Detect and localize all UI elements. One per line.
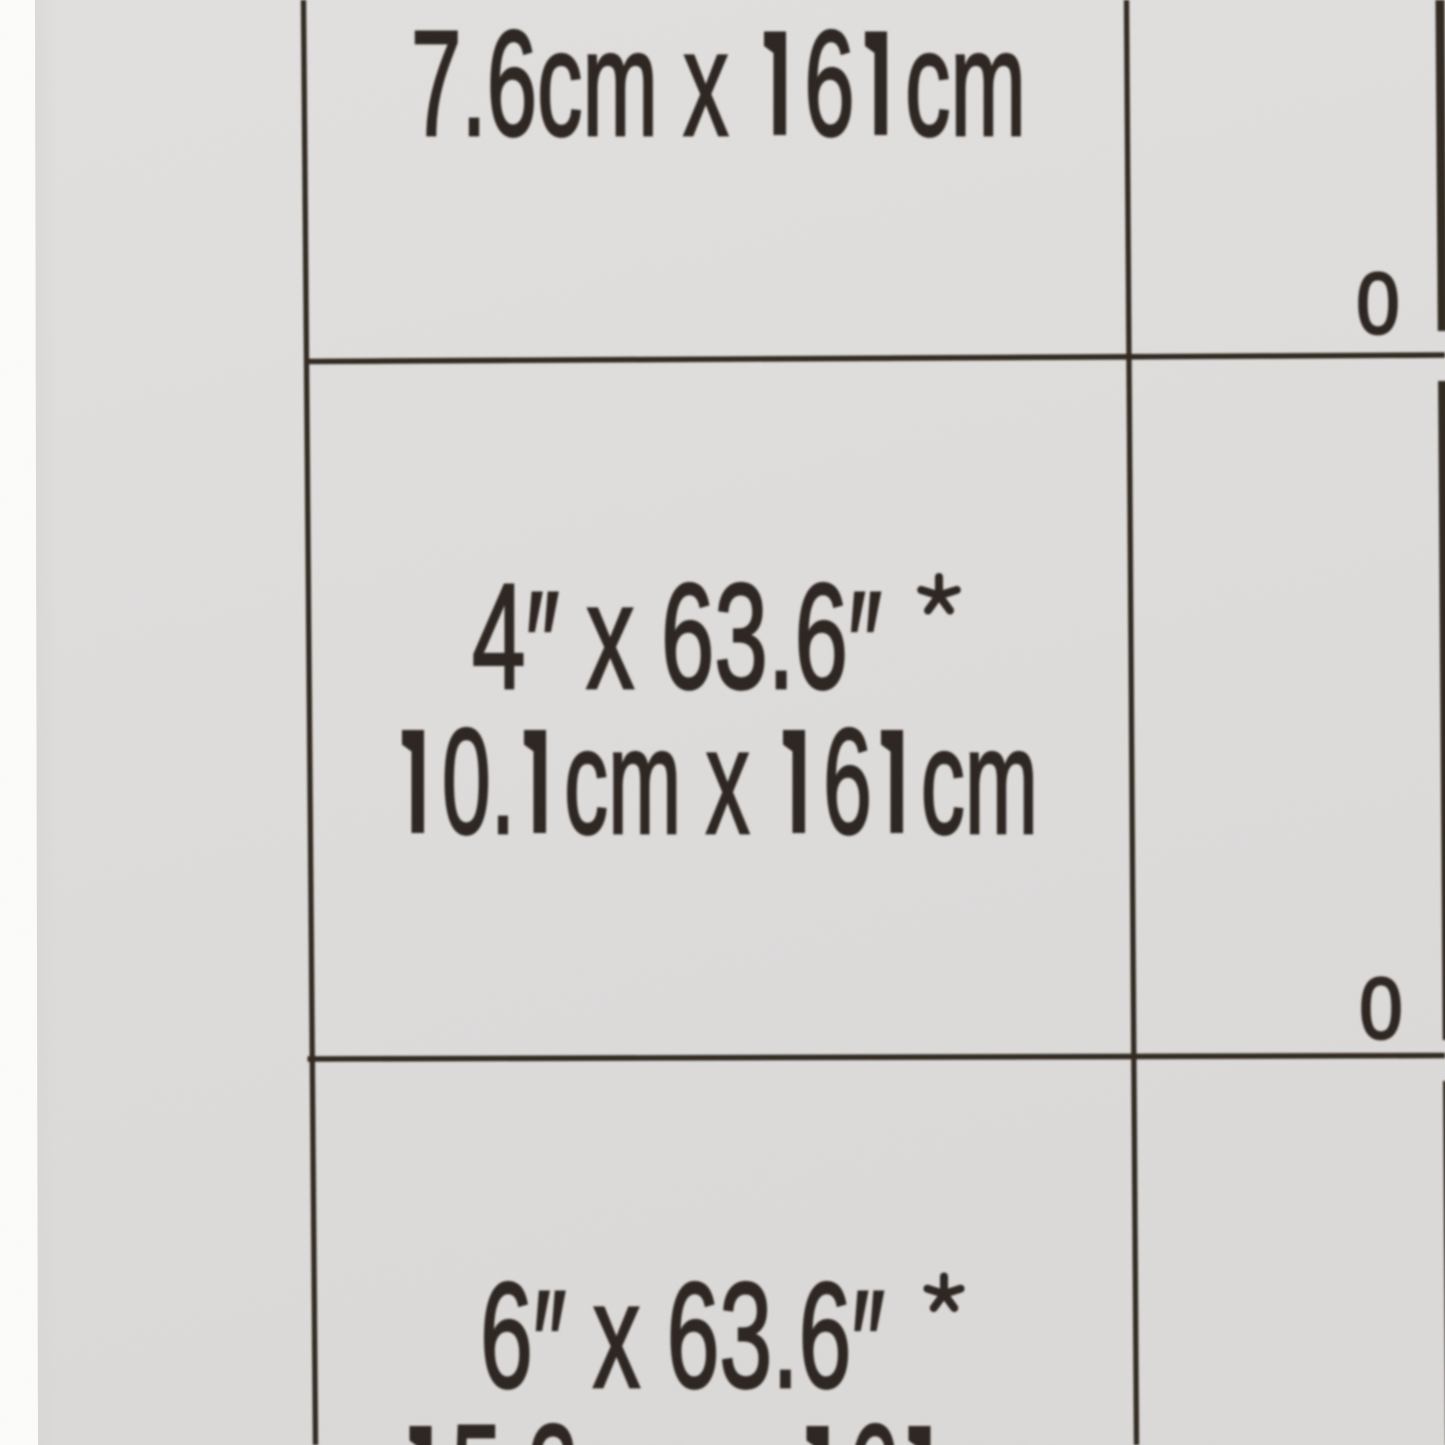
svg-text:10.1cm x 161cm: 10.1cm x 161cm [393, 697, 1038, 865]
svg-text:7.6cm x 161cm: 7.6cm x 161cm [411, 0, 1026, 167]
svg-text:0: 0 [1360, 961, 1403, 1057]
svg-text:15.2cm x 161cm: 15.2cm x 161cm [400, 1393, 1072, 1445]
svg-text:0: 0 [1357, 256, 1400, 352]
